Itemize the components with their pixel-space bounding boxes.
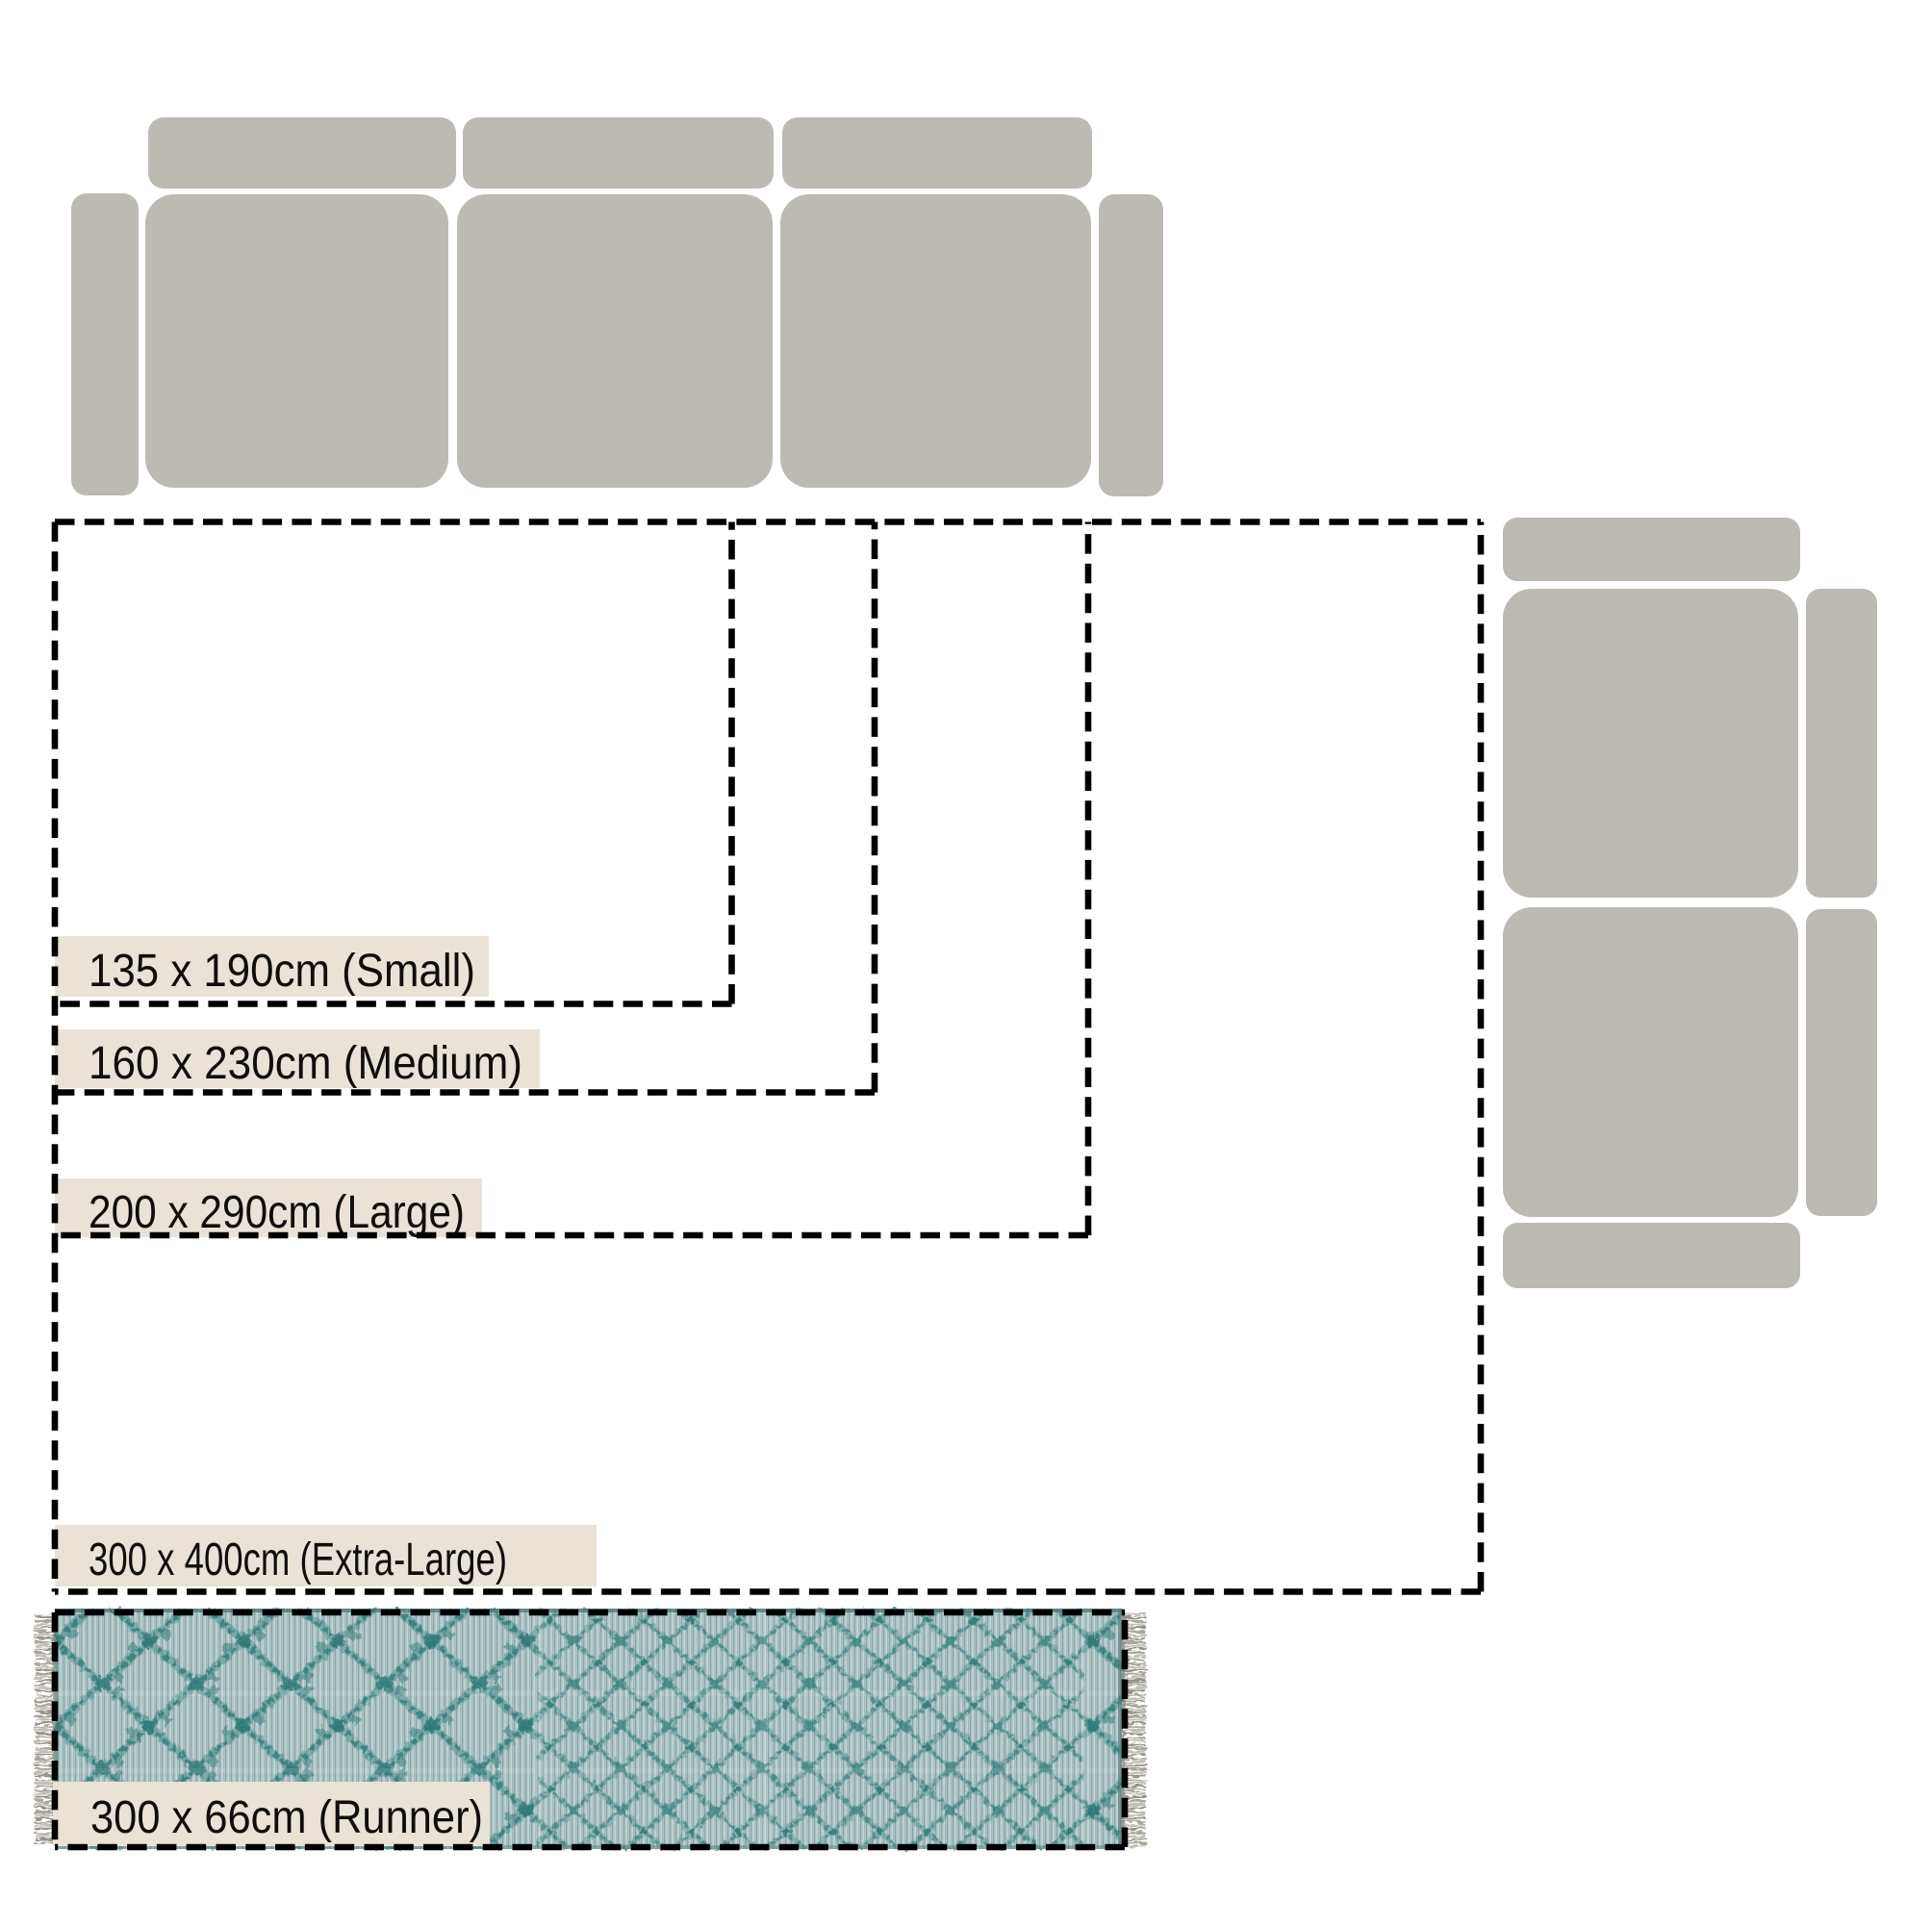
svg-text:160 x 230cm (Medium): 160 x 230cm (Medium) [89,1038,522,1089]
svg-text:300 x 66cm (Runner): 300 x 66cm (Runner) [90,1792,483,1843]
svg-text:135 x 190cm (Small): 135 x 190cm (Small) [89,946,475,997]
svg-text:300 x 400cm (Extra-Large): 300 x 400cm (Extra-Large) [89,1534,507,1585]
svg-text:200 x 290cm (Large): 200 x 290cm (Large) [89,1187,465,1238]
